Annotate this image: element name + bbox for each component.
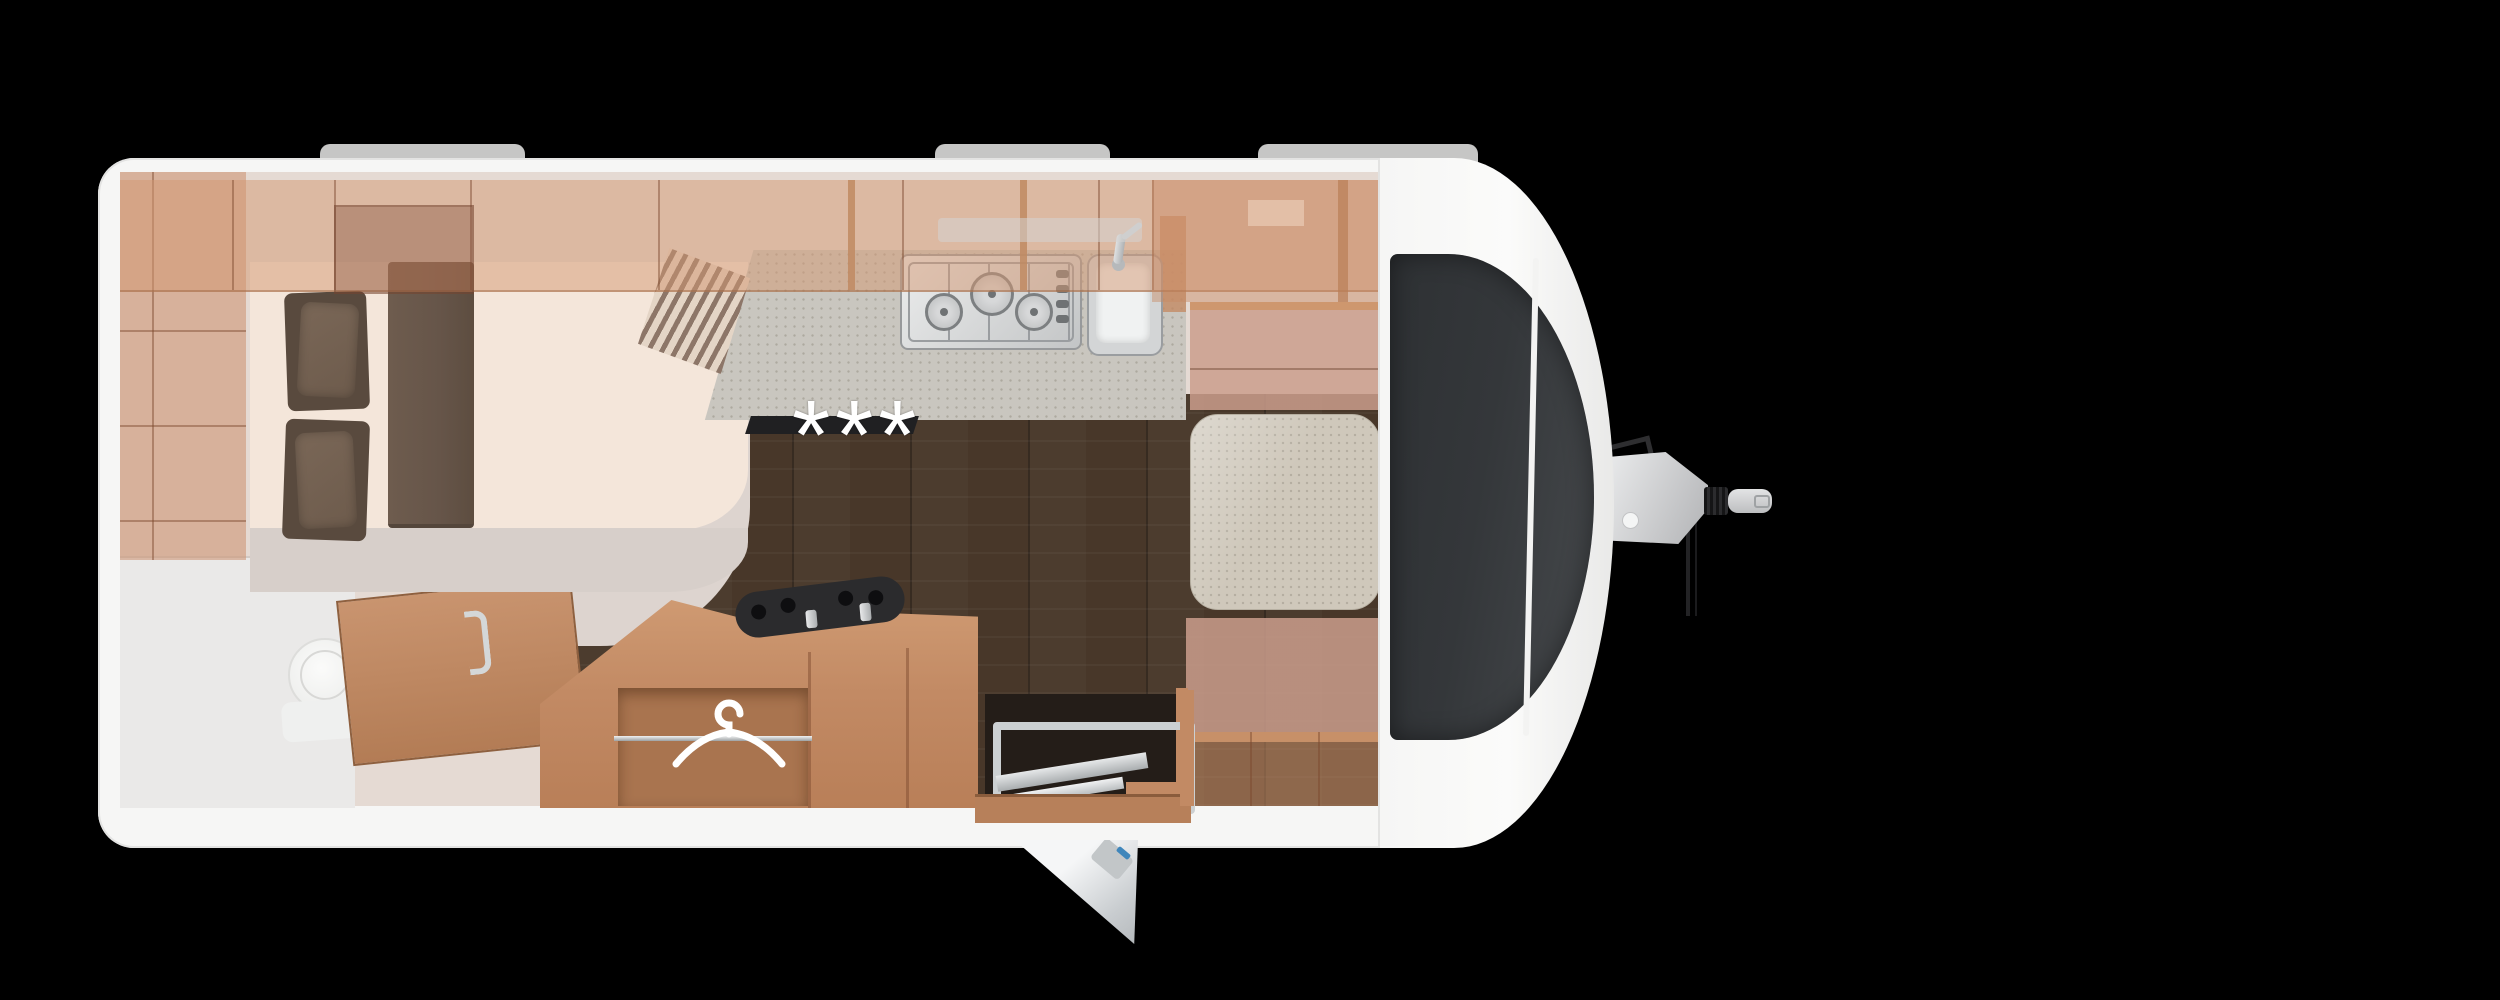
hitch-cover-detail: [1622, 512, 1639, 529]
cabinet-seam: [1250, 732, 1252, 806]
sideboard-shelf: [1248, 200, 1304, 226]
dinette-bench-upper: [1190, 302, 1382, 410]
sideboard-cheek: [1338, 180, 1348, 302]
locker-divider: [658, 180, 660, 290]
headrest-hole: [750, 604, 767, 621]
headrest-hole: [837, 590, 854, 607]
cabinet-seam: [120, 425, 246, 427]
door-handle-icon: [464, 609, 493, 675]
cabinet-seam: [1318, 732, 1320, 806]
under-bench-cabinet: [1190, 732, 1382, 806]
hob-burner: [1015, 293, 1053, 331]
hitch-bellows: [1704, 487, 1728, 515]
open-locker-shelf: [334, 205, 474, 294]
pillow: [297, 302, 360, 399]
wardrobe-seam: [808, 652, 811, 808]
hanger-icon: [664, 690, 794, 784]
hob-knob: [1056, 315, 1069, 323]
pillow: [295, 431, 358, 530]
hitch-cover: [1602, 452, 1708, 544]
cabinet-seam: [120, 520, 246, 522]
bed-runner-blanket: [388, 262, 474, 528]
coupling-notch: [1754, 495, 1770, 508]
entry-post: [1180, 690, 1194, 806]
hob-glass-lid: [938, 218, 1142, 242]
wardrobe-seam: [906, 648, 909, 808]
dinette-table: [1190, 414, 1380, 610]
entry-door-open: [1012, 840, 1138, 944]
headrest-peg: [805, 610, 818, 629]
entry-sill: [975, 794, 1191, 823]
headrest-hole: [780, 597, 797, 614]
locker-divider: [902, 180, 904, 290]
tow-coupling: [1728, 489, 1772, 513]
partition-wall: [848, 180, 855, 290]
cabinet-seam: [120, 330, 246, 332]
caravan-floorplan-canvas: ***: [0, 0, 2500, 1000]
dinette-bench-lower: [1186, 618, 1382, 742]
asterisk-floor-marking: ***: [792, 386, 952, 484]
locker-divider: [232, 180, 234, 290]
hob-burner: [925, 293, 963, 331]
burner-cap: [940, 308, 948, 316]
hob-knob: [1056, 300, 1069, 308]
burner-cap: [1030, 308, 1038, 316]
bench-seam: [1190, 368, 1382, 370]
headrest-peg: [859, 603, 872, 622]
